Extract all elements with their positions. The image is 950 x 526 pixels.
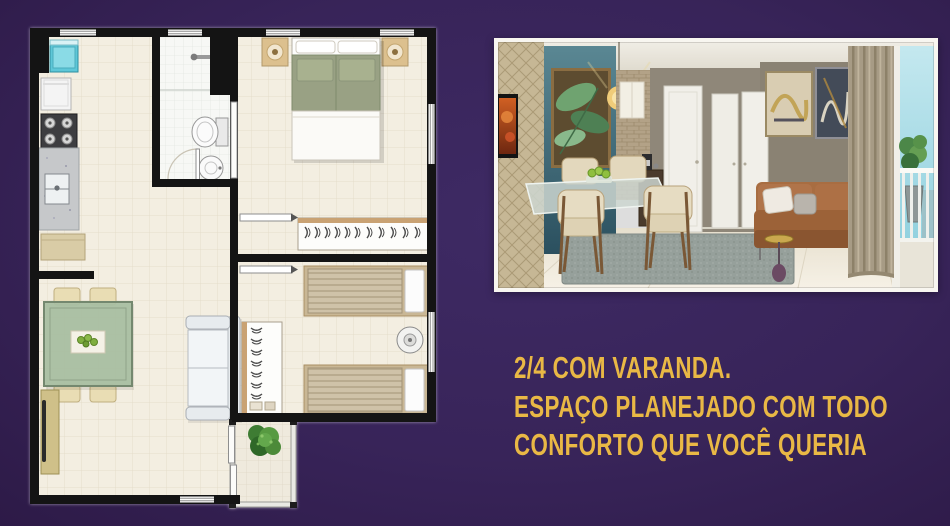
pillow [762, 186, 793, 214]
wardrobe-icon [242, 322, 282, 414]
interior-photo [494, 38, 938, 292]
art-frame-icon [766, 72, 812, 136]
headline-line-3: CONFORTO QUE VOCÊ QUERIA [514, 426, 831, 465]
wall-art [766, 68, 854, 138]
headline: 2/4 COM VARANDA. ESPAÇO PLANEJADO COM TO… [514, 349, 831, 465]
headline-line-1: 2/4 COM VARANDA. [514, 349, 831, 388]
counter-sink-icon [39, 148, 79, 230]
nightstand-icon [262, 38, 288, 66]
dining-table-icon [44, 302, 134, 390]
laundry-tank-icon [50, 40, 78, 72]
door-icon [712, 94, 738, 228]
sliding-door-icon [240, 214, 298, 222]
wardrobe-icon [298, 218, 428, 250]
single-bed-icon [304, 365, 428, 415]
panel-wall [498, 42, 544, 288]
tv-rack-icon [41, 390, 59, 474]
cabinet-icon [41, 234, 85, 260]
headline-line-2: ESPAÇO PLANEJADO COM TODO [514, 388, 831, 427]
double-bed-icon [292, 38, 384, 163]
floor-plan [30, 28, 460, 512]
fan-icon [397, 327, 423, 353]
nightstand-icon [382, 38, 408, 66]
washbasin-icon [199, 156, 223, 180]
tv-icon [498, 94, 518, 158]
pillow [794, 194, 816, 214]
toilet-icon [192, 117, 228, 147]
curtain [848, 46, 894, 274]
refrigerator-icon [41, 78, 71, 110]
single-bed-icon [304, 266, 428, 316]
balcony-floor [900, 242, 934, 288]
sliding-door-icon [240, 266, 298, 274]
balcony-view [848, 46, 934, 288]
stove-icon [41, 114, 77, 148]
